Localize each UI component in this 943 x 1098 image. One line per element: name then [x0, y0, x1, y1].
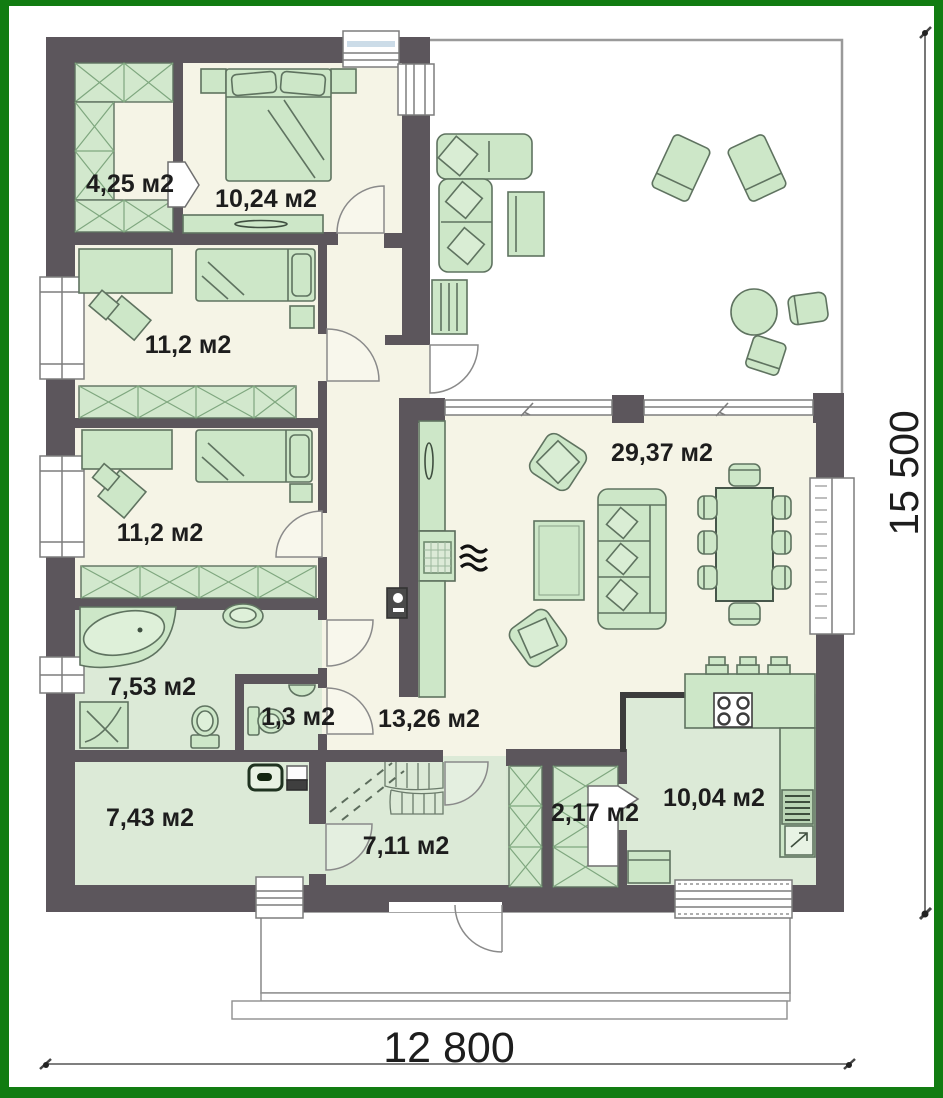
- svg-text:4,25 м2: 4,25 м2: [86, 170, 174, 198]
- svg-text:10,04 м2: 10,04 м2: [663, 784, 765, 812]
- svg-text:7,53 м2: 7,53 м2: [108, 673, 196, 701]
- svg-text:10,24 м2: 10,24 м2: [215, 185, 317, 213]
- svg-text:1,3 м2: 1,3 м2: [261, 703, 335, 731]
- svg-text:11,2 м2: 11,2 м2: [145, 331, 232, 359]
- svg-text:7,43 м2: 7,43 м2: [106, 804, 194, 832]
- svg-text:12 800: 12 800: [383, 1024, 515, 1072]
- svg-text:2,17 м2: 2,17 м2: [551, 799, 639, 827]
- svg-text:13,26 м2: 13,26 м2: [378, 705, 480, 733]
- svg-text:15 500: 15 500: [881, 410, 927, 535]
- svg-text:7,11 м2: 7,11 м2: [363, 832, 450, 860]
- svg-text:11,2 м2: 11,2 м2: [117, 519, 204, 547]
- svg-text:29,37 м2: 29,37 м2: [611, 439, 713, 467]
